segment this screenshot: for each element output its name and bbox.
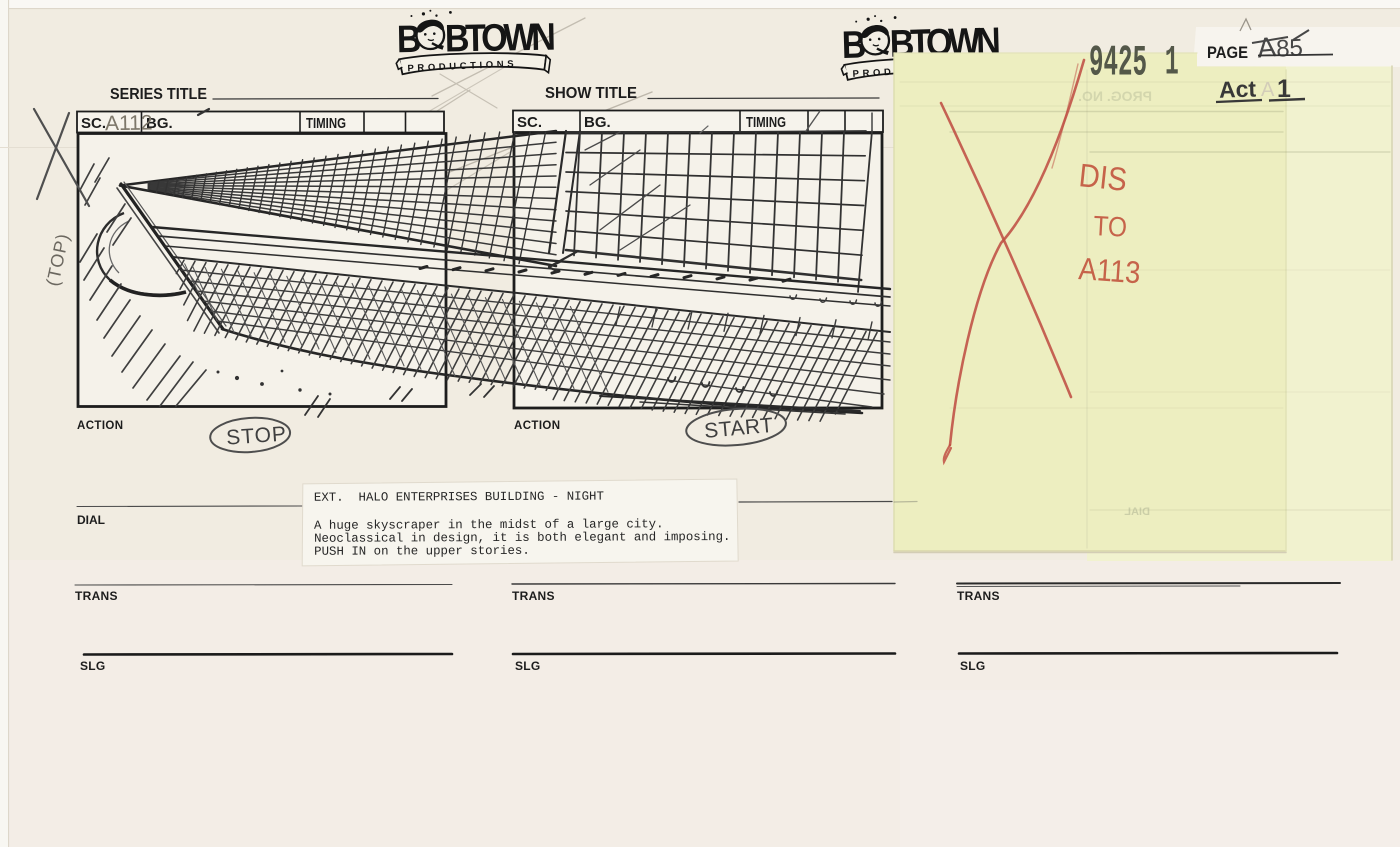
svg-text:TRANS: TRANS xyxy=(957,589,1000,603)
svg-text:SLG: SLG xyxy=(515,659,541,673)
svg-text:ACTION: ACTION xyxy=(77,420,123,432)
svg-text:SHOW TITLE: SHOW TITLE xyxy=(545,85,637,102)
svg-text:TRANS: TRANS xyxy=(75,589,118,603)
svg-text:DIAL: DIAL xyxy=(1124,506,1150,518)
svg-text:A: A xyxy=(1256,31,1278,64)
svg-text:BG.: BG. xyxy=(584,114,611,131)
svg-text:TIMING: TIMING xyxy=(306,115,346,132)
svg-text:PAGE: PAGE xyxy=(1207,43,1248,62)
svg-text:SERIES TITLE: SERIES TITLE xyxy=(110,86,207,103)
svg-text:1: 1 xyxy=(1165,40,1179,87)
svg-text:A: A xyxy=(1261,79,1275,101)
svg-text:DIS: DIS xyxy=(1077,156,1129,198)
svg-text:85: 85 xyxy=(1275,34,1303,62)
svg-text:SC.: SC. xyxy=(81,115,106,132)
svg-text:PROG. NO.: PROG. NO. xyxy=(1078,88,1152,104)
svg-text:TIMING: TIMING xyxy=(746,114,786,131)
svg-text:ACTION: ACTION xyxy=(514,420,560,432)
svg-text:A112: A112 xyxy=(105,111,153,135)
svg-text:TRANS: TRANS xyxy=(512,589,555,603)
svg-text:STOP: STOP xyxy=(226,422,288,449)
svg-text:SLG: SLG xyxy=(80,659,106,673)
svg-text:TO: TO xyxy=(1093,210,1128,244)
svg-text:EXT. HALO ENTERPRISES BUILDIN: EXT. HALO ENTERPRISES BUILDING - NIGHT xyxy=(314,490,604,505)
svg-text:A113: A113 xyxy=(1077,251,1141,290)
svg-text:9425: 9425 xyxy=(1089,37,1147,88)
svg-text:Act: Act xyxy=(1219,75,1257,102)
svg-text:SC.: SC. xyxy=(517,114,542,131)
svg-text:SLG: SLG xyxy=(960,659,986,673)
svg-text:DIAL: DIAL xyxy=(77,513,105,527)
svg-text:PUSH IN on the upper stories.: PUSH IN on the upper stories. xyxy=(314,544,530,559)
